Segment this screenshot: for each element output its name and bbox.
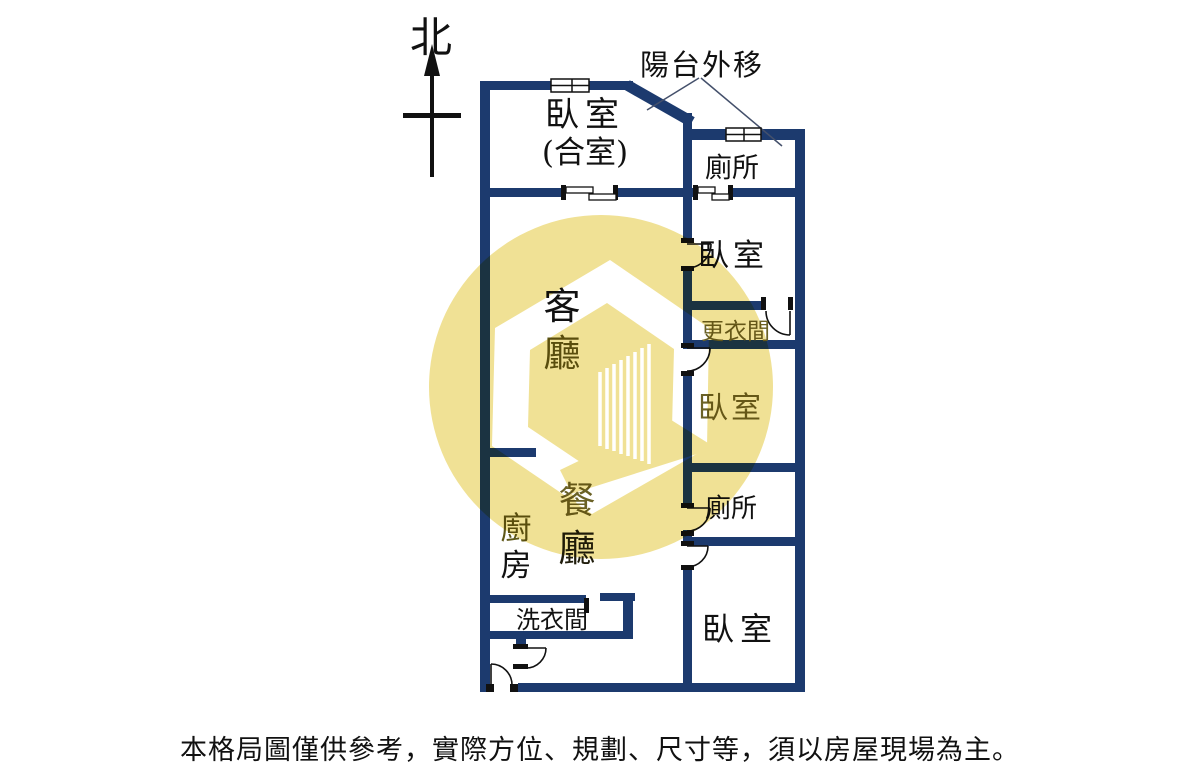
room-label-living: 客 廳 <box>536 283 588 377</box>
door-swing-service <box>513 644 546 669</box>
living-char2: 廳 <box>544 330 581 377</box>
room-label-kitchen: 廚 房 <box>492 511 540 585</box>
window-icon-bedroom-top <box>551 79 589 92</box>
sliding-door-living <box>561 185 618 200</box>
dining-char2: 廳 <box>559 525 596 573</box>
bedroom-top-line1: 臥室 <box>495 96 675 134</box>
window-icon-toilet-top <box>726 128 761 141</box>
living-char1: 客 <box>544 283 581 330</box>
kitchen-char1: 廚 <box>501 511 532 548</box>
sliding-door-toilet-top <box>693 185 733 200</box>
kitchen-char2: 房 <box>501 548 532 585</box>
disclaimer-text: 本格局圖僅供參考，實際方位、規劃、尺寸等，須以房屋現場為主。 <box>0 728 1200 767</box>
dining-char1: 餐 <box>559 477 596 525</box>
room-label-toilet-top: 廁所 <box>705 146 795 185</box>
door-swing-bedroom2 <box>681 343 710 376</box>
room-label-dining: 餐 廳 <box>551 477 603 573</box>
north-label: 北 <box>405 4 457 65</box>
room-label-bedroom3: 臥室 <box>702 604 798 650</box>
floorplan-canvas: 北 陽台外移 臥室 (合室) 廁所 臥室 更衣間 臥室 客 廳 廁所 餐 廳 廚… <box>0 0 1200 768</box>
door-swing-bedroom3 <box>681 541 708 570</box>
room-label-toilet2: 廁所 <box>705 488 795 525</box>
room-label-laundry: 洗衣間 <box>516 600 602 635</box>
balcony-annotation: 陽台外移 <box>640 42 764 84</box>
bedroom-top-line2: (合室) <box>495 134 675 172</box>
room-label-bedroom1: 臥室 <box>698 230 798 275</box>
room-label-bedroom2: 臥室 <box>698 383 790 427</box>
room-label-bedroom-top: 臥室 (合室) <box>495 96 675 172</box>
room-label-closet: 更衣間 <box>701 312 797 346</box>
